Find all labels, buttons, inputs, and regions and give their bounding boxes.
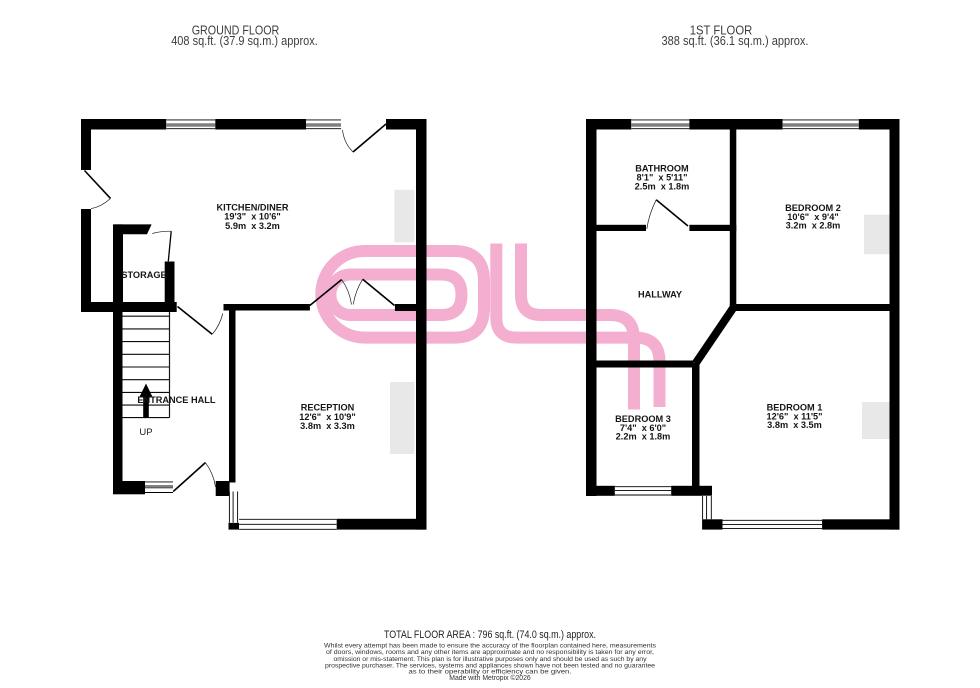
svg-text:3.8m x 3.5m: 3.8m x 3.5m xyxy=(767,420,822,430)
svg-text:5.9m x 3.2m: 5.9m x 3.2m xyxy=(225,221,280,231)
svg-text:ENTRANCE HALL: ENTRANCE HALL xyxy=(137,395,215,405)
svg-text:HALLWAY: HALLWAY xyxy=(638,289,682,299)
svg-text:STORAGE: STORAGE xyxy=(121,270,166,280)
svg-text:408 sq.ft. (37.9 sq.m.) approx: 408 sq.ft. (37.9 sq.m.) approx. xyxy=(171,34,318,48)
svg-text:Made with Metropix ©2026: Made with Metropix ©2026 xyxy=(449,674,530,682)
svg-text:2.5m x 1.8m: 2.5m x 1.8m xyxy=(635,181,690,191)
svg-text:3.8m x 3.3m: 3.8m x 3.3m xyxy=(300,421,355,431)
svg-text:388 sq.ft. (36.1 sq.m.) approx: 388 sq.ft. (36.1 sq.m.) approx. xyxy=(662,34,809,48)
svg-text:UP: UP xyxy=(139,427,152,438)
svg-text:3.2m x 2.8m: 3.2m x 2.8m xyxy=(786,221,841,231)
svg-text:2.2m x 1.8m: 2.2m x 1.8m xyxy=(616,432,671,442)
svg-text:TOTAL FLOOR AREA : 796 sq.ft.: TOTAL FLOOR AREA : 796 sq.ft. (74.0 sq.m… xyxy=(384,629,596,641)
